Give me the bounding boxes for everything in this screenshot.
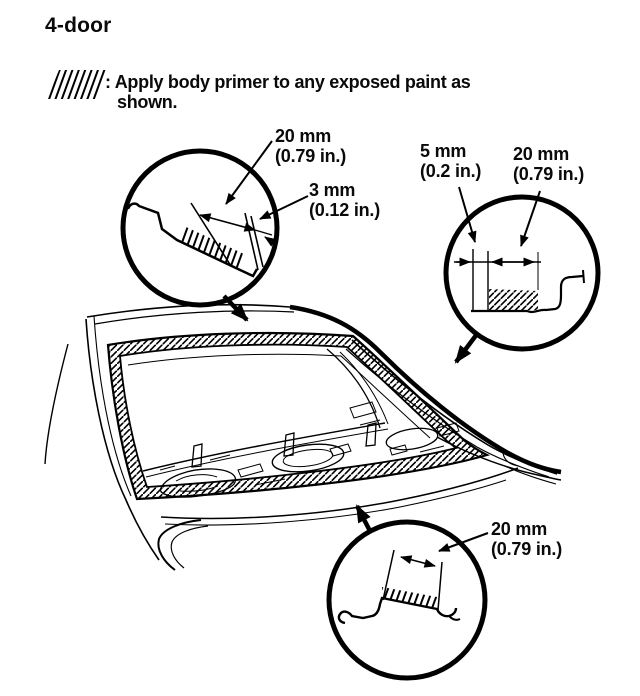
dim-value: 5 mm — [420, 141, 481, 161]
legend-text-line2: shown. — [117, 92, 177, 113]
dim-label-c2-5mm: 5 mm (0.2 in.) — [420, 141, 481, 181]
shelf-tab — [366, 423, 376, 446]
flange-section-bottom — [339, 550, 460, 623]
shelf-tab — [284, 433, 294, 456]
primer-area-hatch — [489, 289, 538, 311]
dim-value: 20 mm — [513, 144, 584, 164]
dim-label-c3-20mm: 20 mm (0.79 in.) — [491, 519, 562, 559]
primer-hatch-swatch — [47, 70, 109, 99]
page-title: 4-door — [45, 14, 112, 38]
flange-section-upper-left — [128, 203, 277, 276]
dim-inches: (0.79 in.) — [275, 146, 346, 166]
primer-area-hatch — [382, 587, 437, 609]
primer-area-hatch — [178, 226, 244, 268]
flange-section-upper-right — [454, 249, 584, 312]
dim-value: 20 mm — [275, 126, 346, 146]
rear-window-primer-diagram — [0, 0, 640, 696]
dim-value: 3 mm — [309, 180, 380, 200]
car-body-line-art — [45, 305, 561, 570]
manual-page: 4-door : Apply body primer to any expose… — [0, 0, 640, 696]
shelf-tab — [192, 444, 202, 467]
dim-inches: (0.79 in.) — [513, 164, 584, 184]
right-c-pillar — [290, 307, 561, 472]
dim-label-c1-3mm: 3 mm (0.12 in.) — [309, 180, 380, 220]
dim-inches: (0.79 in.) — [491, 539, 562, 559]
dim-inches: (0.2 in.) — [420, 161, 481, 181]
dim-label-c2-20mm: 20 mm (0.79 in.) — [513, 144, 584, 184]
dim-label-c1-20mm: 20 mm (0.79 in.) — [275, 126, 346, 166]
dim-value: 20 mm — [491, 519, 562, 539]
dim-inches: (0.12 in.) — [309, 200, 380, 220]
callout-pointer-arrows — [224, 296, 477, 531]
legend-text-line1: : Apply body primer to any exposed paint… — [105, 72, 471, 93]
